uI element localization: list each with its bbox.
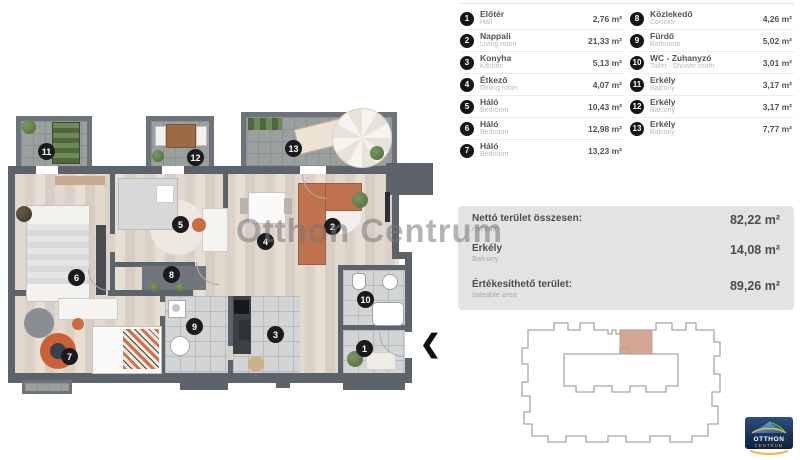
room-names: Erkély Balcony [650,76,676,92]
room-area: 10,43 m² [588,102,624,112]
room-number-badge: 13 [630,122,644,136]
room-name-en: Dining room [480,85,518,92]
room-marker-13: 13 [285,140,302,157]
room-number-badge: 5 [460,100,474,114]
room-area: 12,98 m² [588,124,624,134]
room-names: Erkély Balcony [650,98,676,114]
washer-door [172,304,180,312]
room-names: WC - Zuhanyzó Toilet - Shower room [650,54,714,70]
wall-stub-2 [276,381,290,388]
room-names: Háló Bedroom [480,120,508,136]
building-courtyard-outline [564,348,678,392]
logo-text-line2: CENTRUM [755,443,784,448]
room-names: Előtér Hall [480,10,504,26]
legend-row-5: 5 Háló Bedroom 10,43 m² [460,96,624,118]
room-name-hu: Erkély [650,76,676,85]
legend-row-9: 9 Fürdő Bathroom 5,02 m² [630,30,794,52]
legend-row-12: 12 Erkély Balcony 3,17 m² [630,96,794,118]
summary-value: 89,26 m² [730,279,780,293]
summary-value: 82,22 m² [730,213,780,227]
room-marker-9: 9 [186,318,203,335]
room-name-en: Hall [480,19,504,26]
room-name-en: Bedroom [480,129,508,136]
plant-living [352,192,368,208]
room-number-badge: 2 [460,34,474,48]
room-number-badge: 8 [630,12,644,26]
room-names: Fürdő Bathroom [650,32,680,48]
room-names: Háló Bedroom [480,142,508,158]
room-area: 2,76 m² [593,14,624,24]
bed-room6 [26,205,90,302]
wall-stub-3 [343,381,405,390]
summary-label-en: saleable area [472,291,572,300]
room-name-hu: Háló [480,142,508,151]
kitchen-sink [239,320,250,340]
plant-balcony13 [370,146,384,160]
highlighted-unit [620,330,652,354]
wall-corner-block [386,163,433,195]
room-number-badge: 7 [460,144,474,158]
room-names: Étkező Dining room [480,76,518,92]
bottom-step [22,380,72,394]
shower-tray [372,302,404,326]
room-number-badge: 11 [630,78,644,92]
otthon-centrum-logo: OTTHON CENTRUM [744,416,794,458]
room-name-hu: Előtér [480,10,504,19]
bed-room5 [118,178,178,230]
room-marker-5: 5 [172,216,189,233]
legend-column-right: 8 Közlekedő Corridor 4,26 m² 9 Fürdő Bat… [630,8,794,161]
room-marker-12: 12 [187,149,204,166]
toilet [352,273,366,290]
planter-balcony13 [248,118,282,130]
room-marker-6: 6 [68,269,85,286]
legend-row-7: 7 Háló Bedroom 13,23 m² [460,140,624,161]
room-name-hu: Nappali [480,32,516,41]
room-marker-11: 11 [38,143,55,160]
room-area: 3,17 m² [763,80,794,90]
room-name-en: Balcony [650,129,676,136]
room-names: Konyha Kitchen [480,54,511,70]
patterned-blanket [123,329,159,369]
room-area: 4,07 m² [593,80,624,90]
balcony13-door-gap [300,166,326,174]
summary-row-saleable: Értékesíthető terület: saleable area 89,… [472,279,780,305]
room-name-en: Kitchen [480,63,511,70]
room-area: 5,13 m² [593,58,624,68]
summary-labels: Értékesíthető terület: saleable area [472,279,572,299]
room-name-hu: Erkély [650,120,676,129]
room-name-hu: WC - Zuhanyzó [650,54,714,63]
room-name-hu: Fürdő [650,32,680,41]
plant-balcony12 [152,150,164,162]
legend-column-left: 1 Előtér Hall 2,76 m² 2 Nappali Living r… [460,8,624,161]
room-number-badge: 4 [460,78,474,92]
wall-right-outer [405,252,412,383]
legend-row-13: 13 Erkély Balcony 7,77 m² [630,118,794,139]
entrance-door-gap [405,332,412,358]
floorplan-listing: 1 2 3 4 5 6 7 8 9 10 11 12 13 ❮ Otthon C… [0,0,800,460]
washing-machine [168,300,186,318]
legend-row-11: 11 Erkély Balcony 3,17 m² [630,74,794,96]
room-names: Közlekedő Corridor [650,10,693,26]
shower-sink [382,274,398,290]
kitchen-stove [234,300,249,314]
plant-room6 [16,206,32,222]
plant-corridor-b [176,283,185,292]
room-names: Háló Bedroom [480,98,508,114]
room-area: 13,23 m² [588,146,624,156]
room-marker-7: 7 [61,348,78,365]
desk-room5 [202,208,228,252]
summary-value: 14,08 m² [730,243,780,257]
area-summary: Nettó terület összesen: net sum 82,22 m²… [458,206,794,310]
room-name-hu: Étkező [480,76,518,85]
room-area: 3,17 m² [763,102,794,112]
hall-mat [366,352,396,370]
room-name-en: Balcony [650,107,676,114]
legend-row-1: 1 Előtér Hall 2,76 m² [460,8,624,30]
summary-label-hu: Értékesíthető terület: [472,279,572,291]
bed-room7 [92,326,162,374]
planter-balcony11 [52,122,80,164]
summary-row-net: Nettó terület összesen: net sum 82,22 m² [472,213,780,239]
wall-room6-room5 [110,174,115,234]
parasol-balcony13 [332,108,392,168]
balcony12-chair-right [196,126,207,146]
logo-text-line1: OTTHON [753,436,784,443]
shelf-room6 [55,176,105,185]
room-name-en: Toilet - Shower room [650,63,714,70]
room-number-badge: 10 [630,56,644,70]
kitchen-rug [248,356,264,372]
room-name-hu: Erkély [650,98,676,107]
desk-room7 [58,298,118,320]
wall-top [8,166,399,174]
armchair-room7 [24,308,54,338]
legend-row-8: 8 Közlekedő Corridor 4,26 m² [630,8,794,30]
room-marker-3: 3 [267,326,284,343]
room-name-hu: Konyha [480,54,511,63]
room-area: 5,02 m² [763,36,794,46]
room-name-en: Living room [480,41,516,48]
chair-room5 [192,218,206,232]
room-name-en: Bedroom [480,151,508,158]
room-legend: 1 Előtér Hall 2,76 m² 2 Nappali Living r… [460,3,794,161]
room-names: Erkély Balcony [650,120,676,136]
room-name-en: Bathroom [650,41,680,48]
watermark-text: Otthon Centrum [236,212,503,250]
room-number-badge: 12 [630,100,644,114]
legend-row-6: 6 Háló Bedroom 12,98 m² [460,118,624,140]
room-marker-1: 1 [356,340,373,357]
wall-stub-1 [180,381,228,390]
room-marker-8: 8 [163,266,180,283]
room-area: 7,77 m² [763,124,794,134]
legend-row-2: 2 Nappali Living room 21,33 m² [460,30,624,52]
room-name-en: Balcony [650,85,676,92]
room-area: 4,26 m² [763,14,794,24]
room-area: 3,01 m² [763,58,794,68]
room-name-en: Corridor [650,19,693,26]
room-name-hu: Háló [480,98,508,107]
room-name-hu: Közlekedő [650,10,693,19]
pillow [156,185,174,203]
building-outline-map [516,318,730,452]
summary-label-en: Balcony [472,255,502,264]
room-name-en: Bedroom [480,107,508,114]
logo-bottom-swoosh-icon [750,451,788,454]
plant-balcony11 [22,120,36,134]
room-names: Nappali Living room [480,32,516,48]
summary-row-balcony: Erkély Balcony 14,08 m² [472,243,780,269]
legend-row-4: 4 Étkező Dining room 4,07 m² [460,74,624,96]
room-number-badge: 1 [460,12,474,26]
balcony12-chair-left [155,126,166,146]
room-number-badge: 6 [460,122,474,136]
balcony11-door-gap [36,166,58,174]
room-name-hu: Háló [480,120,508,129]
bathroom-sink [170,336,190,356]
balcony12-door-gap [162,166,184,174]
legend-row-10: 10 WC - Zuhanyzó Toilet - Shower room 3,… [630,52,794,74]
room-number-badge: 9 [630,34,644,48]
balcony12-table [166,124,196,148]
plant-corridor-a [150,283,159,292]
room-number-badge: 3 [460,56,474,70]
room-marker-10: 10 [357,291,374,308]
legend-row-3: 3 Konyha Kitchen 5,13 m² [460,52,624,74]
chair-room7 [72,318,84,330]
wall-left [8,166,15,383]
entrance-arrow-icon: ❮ [420,329,441,359]
room-area: 21,33 m² [588,36,624,46]
